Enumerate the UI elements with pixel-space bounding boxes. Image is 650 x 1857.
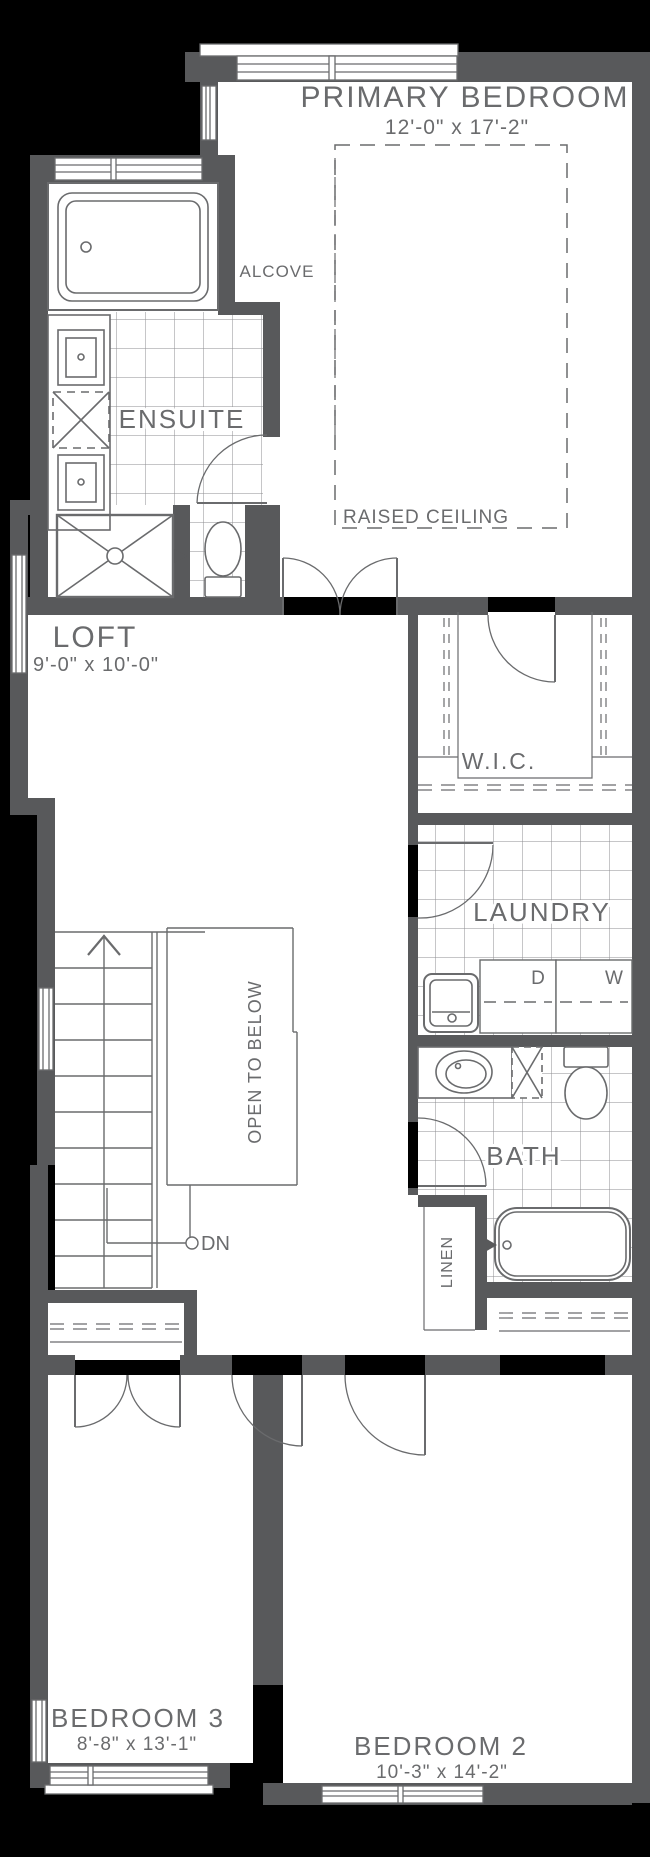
linen-label: LINEN [439, 1236, 456, 1288]
bedroom3-side-window [32, 1700, 46, 1762]
ensuite-window [55, 158, 202, 180]
floor-plan-svg: PRIMARY BEDROOM 12'-0" x 17'-2" ALCOVE E… [0, 0, 650, 1857]
loft-label: LOFT [53, 621, 138, 654]
bedroom2-window [322, 1786, 483, 1803]
raised-ceiling-label: RAISED CEILING [343, 507, 509, 528]
laundry-label: LAUNDRY [473, 897, 611, 927]
wic-label: W.I.C. [462, 748, 537, 774]
washer-label: W [605, 968, 623, 989]
primary-bedroom-window [200, 44, 458, 80]
bath-vanity [418, 1047, 512, 1098]
bedroom3-dims: 8'-8" x 13'-1" [77, 1734, 197, 1755]
ensuite-label: ENSUITE [119, 404, 246, 434]
primary-bedroom-side-window [202, 86, 216, 140]
primary-bedroom-dims: 12'-0" x 17'-2" [385, 116, 529, 139]
toilet-icon [205, 522, 241, 597]
bath-cabinet-icon [512, 1047, 542, 1098]
laundry-sink-icon [424, 974, 478, 1032]
open-to-below-label: OPEN TO BELOW [245, 980, 265, 1143]
loft-dims: 9'-0" x 10'-0" [33, 654, 159, 676]
floor-plan: PRIMARY BEDROOM 12'-0" x 17'-2" ALCOVE E… [0, 0, 650, 1857]
bath-label: BATH [486, 1141, 561, 1171]
primary-bedroom-label: PRIMARY BEDROOM [301, 81, 630, 114]
bedroom3-label: BEDROOM 3 [51, 1703, 225, 1733]
bedroom2-label: BEDROOM 2 [354, 1731, 528, 1761]
bedroom2-dims: 10'-3" x 14'-2" [376, 1762, 508, 1783]
bedroom3-window [45, 1766, 213, 1794]
down-label: DN [201, 1233, 230, 1255]
bathtub-icon [485, 1208, 630, 1280]
dryer-label: D [531, 968, 545, 989]
alcove-label: ALCOVE [240, 262, 315, 281]
loft-window-lower [39, 988, 53, 1070]
toilet-icon [564, 1047, 608, 1119]
loft-window-upper [12, 555, 26, 673]
